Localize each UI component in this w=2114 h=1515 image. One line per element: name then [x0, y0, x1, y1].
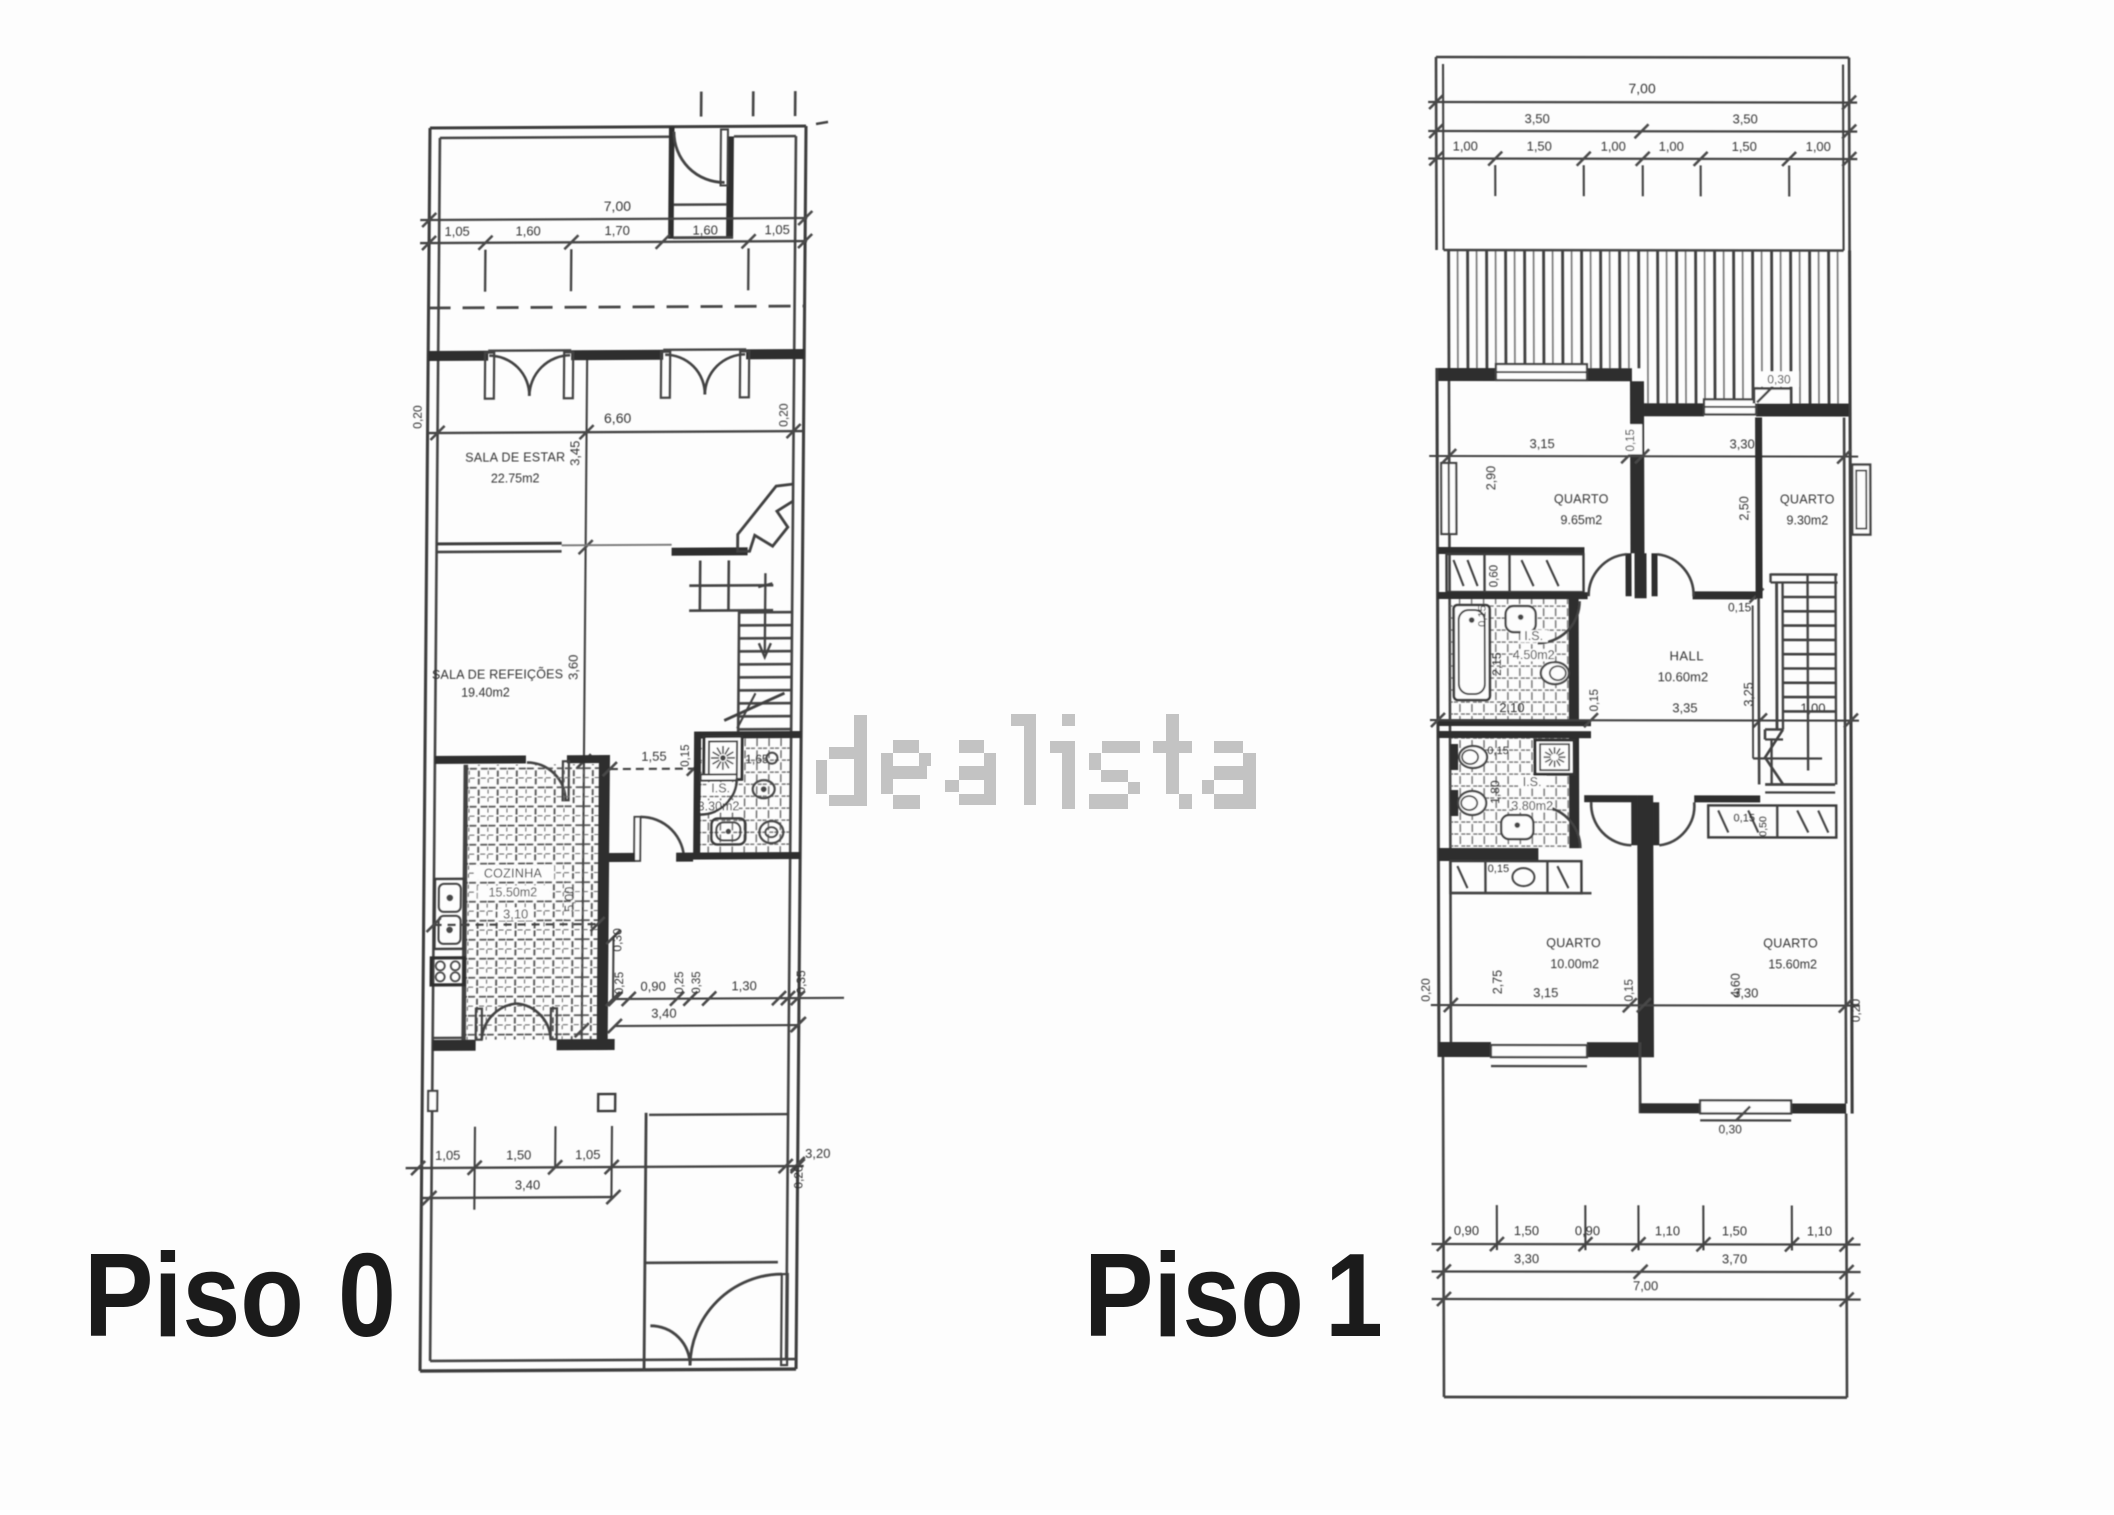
svg-text:3,60: 3,60 — [566, 655, 581, 680]
svg-text:7,00: 7,00 — [604, 198, 632, 214]
svg-text:0,35: 0,35 — [691, 971, 703, 993]
svg-text:2,50: 2,50 — [1737, 496, 1751, 520]
svg-text:3,20: 3,20 — [805, 1146, 830, 1161]
svg-text:3.30m2: 3.30m2 — [698, 799, 740, 813]
svg-text:3,10: 3,10 — [503, 906, 528, 921]
svg-text:3,50: 3,50 — [1525, 111, 1550, 126]
svg-text:3,30: 3,30 — [1729, 436, 1754, 451]
svg-text:3,15: 3,15 — [1533, 985, 1558, 1000]
svg-text:3,35: 3,35 — [1672, 700, 1697, 715]
svg-text:0,35: 0,35 — [794, 970, 808, 994]
svg-text:1,00: 1,00 — [1800, 701, 1825, 716]
svg-text:15.50m2: 15.50m2 — [488, 885, 537, 899]
svg-text:QUARTO: QUARTO — [1554, 492, 1609, 506]
svg-text:0,15: 0,15 — [1487, 745, 1508, 757]
svg-text:0,15: 0,15 — [1625, 429, 1637, 451]
svg-text:0,15: 0,15 — [1589, 689, 1601, 711]
svg-text:1,65: 1,65 — [745, 752, 769, 766]
svg-text:QUARTO: QUARTO — [1780, 492, 1835, 506]
svg-text:1,10: 1,10 — [1807, 1224, 1832, 1239]
svg-text:QUARTO: QUARTO — [1546, 936, 1601, 950]
svg-text:0,15: 0,15 — [1624, 979, 1636, 1001]
svg-text:1,00: 1,00 — [1601, 139, 1626, 154]
svg-text:0,90: 0,90 — [1575, 1223, 1600, 1238]
svg-text:Piso: Piso — [84, 1229, 304, 1362]
svg-text:2,10: 2,10 — [1499, 700, 1524, 715]
svg-text:1,55: 1,55 — [641, 749, 666, 764]
svg-text:0,30: 0,30 — [1767, 372, 1791, 386]
svg-text:0,60: 0,60 — [1489, 565, 1501, 587]
svg-text:1,00: 1,00 — [1806, 139, 1831, 154]
svg-text:3,45: 3,45 — [567, 441, 582, 466]
svg-text:Piso: Piso — [1084, 1229, 1304, 1362]
svg-text:2,15: 2,15 — [1490, 652, 1504, 676]
svg-text:3,30: 3,30 — [1514, 1251, 1539, 1266]
svg-text:0,90: 0,90 — [640, 979, 665, 994]
svg-text:3,70: 3,70 — [1722, 1251, 1747, 1266]
svg-text:I.S.: I.S. — [1524, 629, 1543, 643]
svg-text:1: 1 — [1325, 1229, 1383, 1362]
svg-text:0,90: 0,90 — [1454, 1223, 1479, 1238]
svg-text:3,50: 3,50 — [1733, 111, 1758, 126]
svg-text:19.40m2: 19.40m2 — [461, 686, 510, 700]
svg-text:1,60: 1,60 — [515, 223, 540, 238]
svg-text:3,15: 3,15 — [1529, 436, 1554, 451]
svg-text:2,75: 2,75 — [1491, 970, 1505, 994]
svg-text:1,50: 1,50 — [1514, 1223, 1539, 1238]
svg-text:6,60: 6,60 — [604, 410, 632, 426]
svg-text:1,70: 1,70 — [604, 223, 629, 238]
svg-text:1,50: 1,50 — [1732, 139, 1757, 154]
svg-text:2,90: 2,90 — [1484, 466, 1498, 490]
svg-text:9.65m2: 9.65m2 — [1561, 513, 1603, 527]
svg-text:0,20: 0,20 — [411, 405, 425, 429]
svg-text:0,20: 0,20 — [791, 1165, 805, 1189]
svg-text:SALA DE ESTAR: SALA DE ESTAR — [465, 450, 565, 465]
svg-text:1,05: 1,05 — [444, 224, 469, 239]
svg-text:0,25: 0,25 — [674, 971, 686, 993]
svg-text:9.30m2: 9.30m2 — [1787, 513, 1829, 527]
svg-text:7,00: 7,00 — [1628, 80, 1656, 96]
svg-text:1,05: 1,05 — [575, 1147, 600, 1162]
svg-text:0,15: 0,15 — [1488, 863, 1509, 875]
svg-text:7,00: 7,00 — [1633, 1278, 1658, 1293]
svg-text:0,30: 0,30 — [1718, 1122, 1742, 1136]
svg-text:1,30: 1,30 — [731, 978, 756, 993]
svg-text:SALA DE REFEIÇÕES: SALA DE REFEIÇÕES — [432, 666, 563, 682]
svg-text:22.75m2: 22.75m2 — [491, 471, 540, 485]
svg-text:3,40: 3,40 — [515, 1177, 540, 1192]
svg-text:1,50: 1,50 — [1527, 139, 1552, 154]
svg-text:1,00: 1,00 — [1659, 139, 1684, 154]
svg-text:0,15: 0,15 — [680, 744, 692, 766]
svg-text:3,40: 3,40 — [651, 1006, 676, 1021]
svg-text:1,05: 1,05 — [764, 222, 789, 237]
svg-text:10.00m2: 10.00m2 — [1550, 957, 1599, 971]
svg-text:0: 0 — [338, 1229, 396, 1362]
svg-text:0,20: 0,20 — [777, 403, 791, 427]
svg-text:1,50: 1,50 — [506, 1147, 531, 1162]
svg-text:4.50m2: 4.50m2 — [1513, 648, 1555, 662]
svg-text:1,05: 1,05 — [435, 1148, 460, 1163]
svg-text:1,10: 1,10 — [1655, 1223, 1680, 1238]
svg-text:0,25: 0,25 — [614, 972, 626, 994]
svg-text:1,50: 1,50 — [1722, 1223, 1747, 1238]
svg-text:COZINHA: COZINHA — [484, 866, 543, 880]
svg-text:I.S.: I.S. — [711, 781, 730, 795]
svg-text:0,15: 0,15 — [1728, 600, 1752, 614]
svg-text:1,80: 1,80 — [1488, 780, 1502, 804]
svg-text:1,60: 1,60 — [692, 222, 717, 237]
svg-text:I.S.: I.S. — [1523, 775, 1542, 789]
svg-text:0,50: 0,50 — [1757, 816, 1769, 837]
svg-text:1,00: 1,00 — [1453, 139, 1478, 154]
svg-text:4,60: 4,60 — [1729, 973, 1743, 997]
svg-text:0,20: 0,20 — [1419, 978, 1433, 1002]
svg-text:0,15: 0,15 — [1734, 812, 1755, 824]
svg-text:15.60m2: 15.60m2 — [1768, 957, 1817, 971]
svg-text:HALL: HALL — [1669, 648, 1704, 663]
svg-text:3.80m2: 3.80m2 — [1511, 799, 1553, 813]
svg-text:QUARTO: QUARTO — [1763, 936, 1818, 950]
svg-text:10.60m2: 10.60m2 — [1658, 669, 1709, 684]
svg-text:0,30: 0,30 — [610, 928, 624, 952]
svg-text:0,15: 0,15 — [1477, 605, 1489, 626]
